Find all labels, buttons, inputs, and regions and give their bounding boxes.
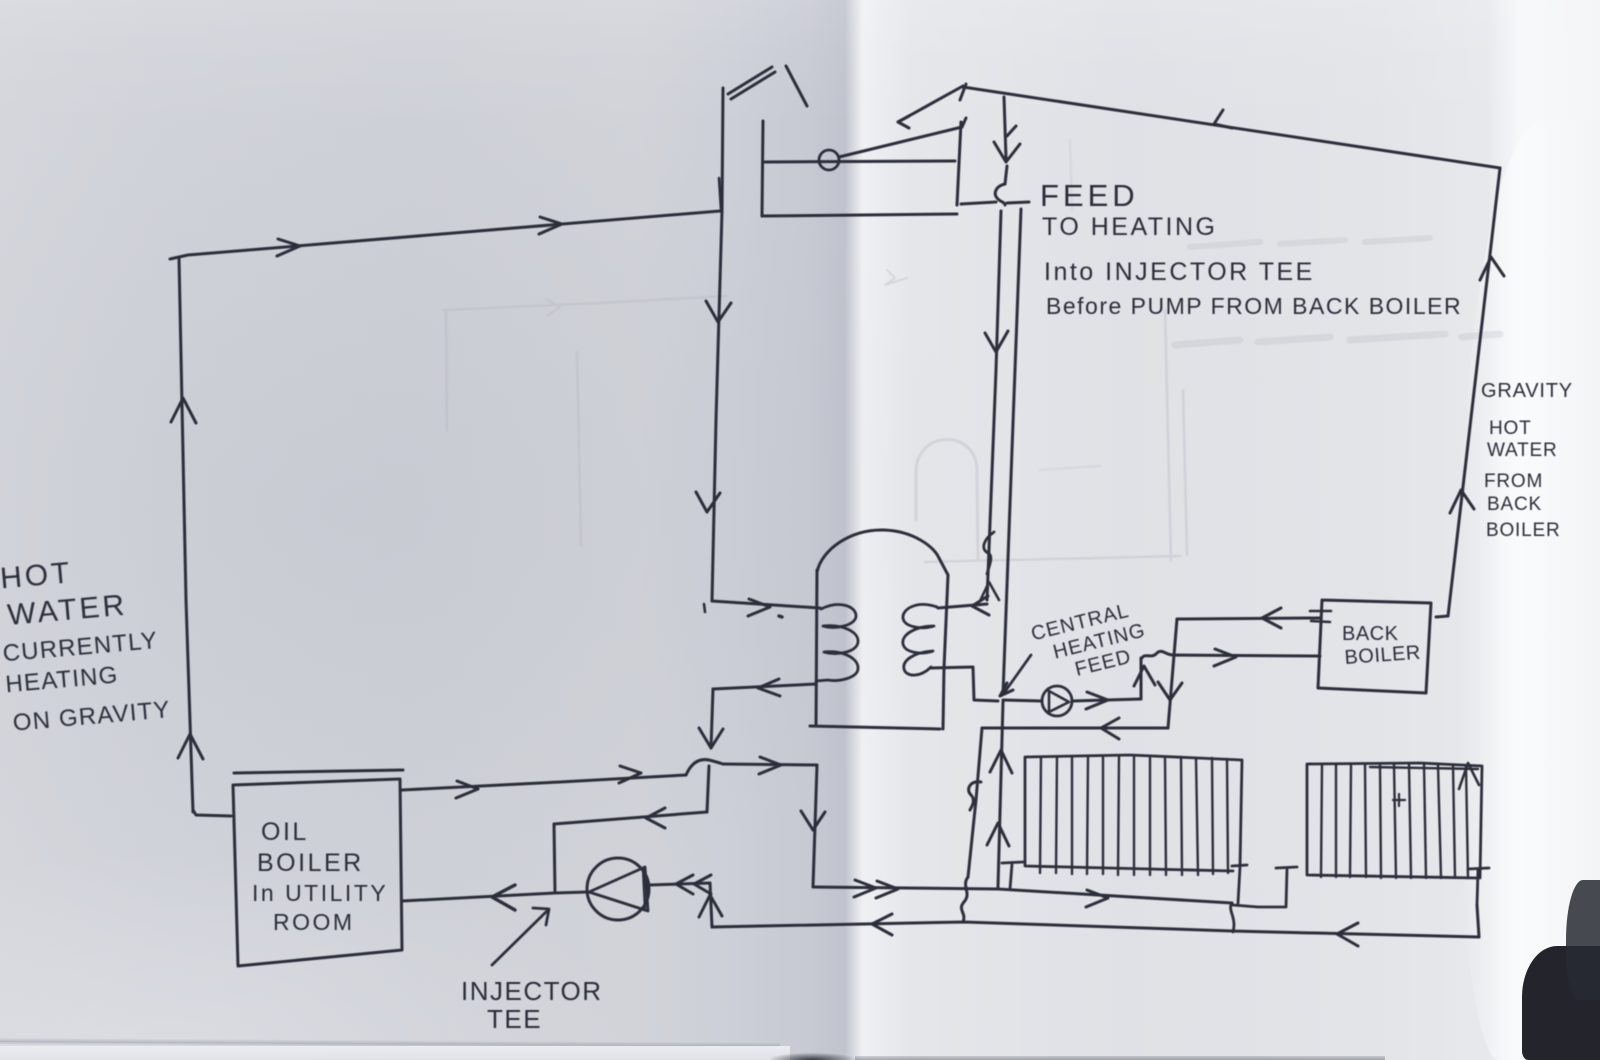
svg-text:FEED: FEED — [1040, 178, 1139, 213]
svg-text:WATER: WATER — [1487, 440, 1558, 461]
svg-text:OIL: OIL — [261, 818, 309, 846]
svg-text:TO HEATING: TO HEATING — [1042, 213, 1217, 241]
svg-text:In UTILITY: In UTILITY — [252, 880, 388, 906]
svg-text:BACK: BACK — [1342, 623, 1399, 645]
svg-text:GRAVITY: GRAVITY — [1481, 380, 1573, 402]
svg-text:TEE: TEE — [487, 1004, 542, 1034]
svg-text:HEATING: HEATING — [4, 662, 119, 699]
svg-text:ROOM: ROOM — [273, 909, 355, 935]
svg-text:Into INJECTOR TEE: Into INJECTOR TEE — [1044, 258, 1315, 286]
svg-text:BOILER: BOILER — [1344, 642, 1422, 669]
svg-text:BACK: BACK — [1487, 494, 1542, 515]
svg-text:ON GRAVITY: ON GRAVITY — [12, 696, 172, 737]
svg-text:Before PUMP FROM BACK BOILER: Before PUMP FROM BACK BOILER — [1046, 293, 1462, 319]
svg-text:WATER: WATER — [6, 589, 128, 632]
svg-text:FROM: FROM — [1484, 471, 1543, 492]
svg-text:INJECTOR: INJECTOR — [461, 976, 603, 1006]
svg-text:CURRENTLY: CURRENTLY — [2, 627, 159, 667]
svg-text:HOT: HOT — [1489, 418, 1532, 439]
svg-text:BOILER: BOILER — [257, 849, 364, 877]
svg-text:BOILER: BOILER — [1486, 520, 1561, 541]
svg-text:HOT: HOT — [0, 556, 74, 595]
